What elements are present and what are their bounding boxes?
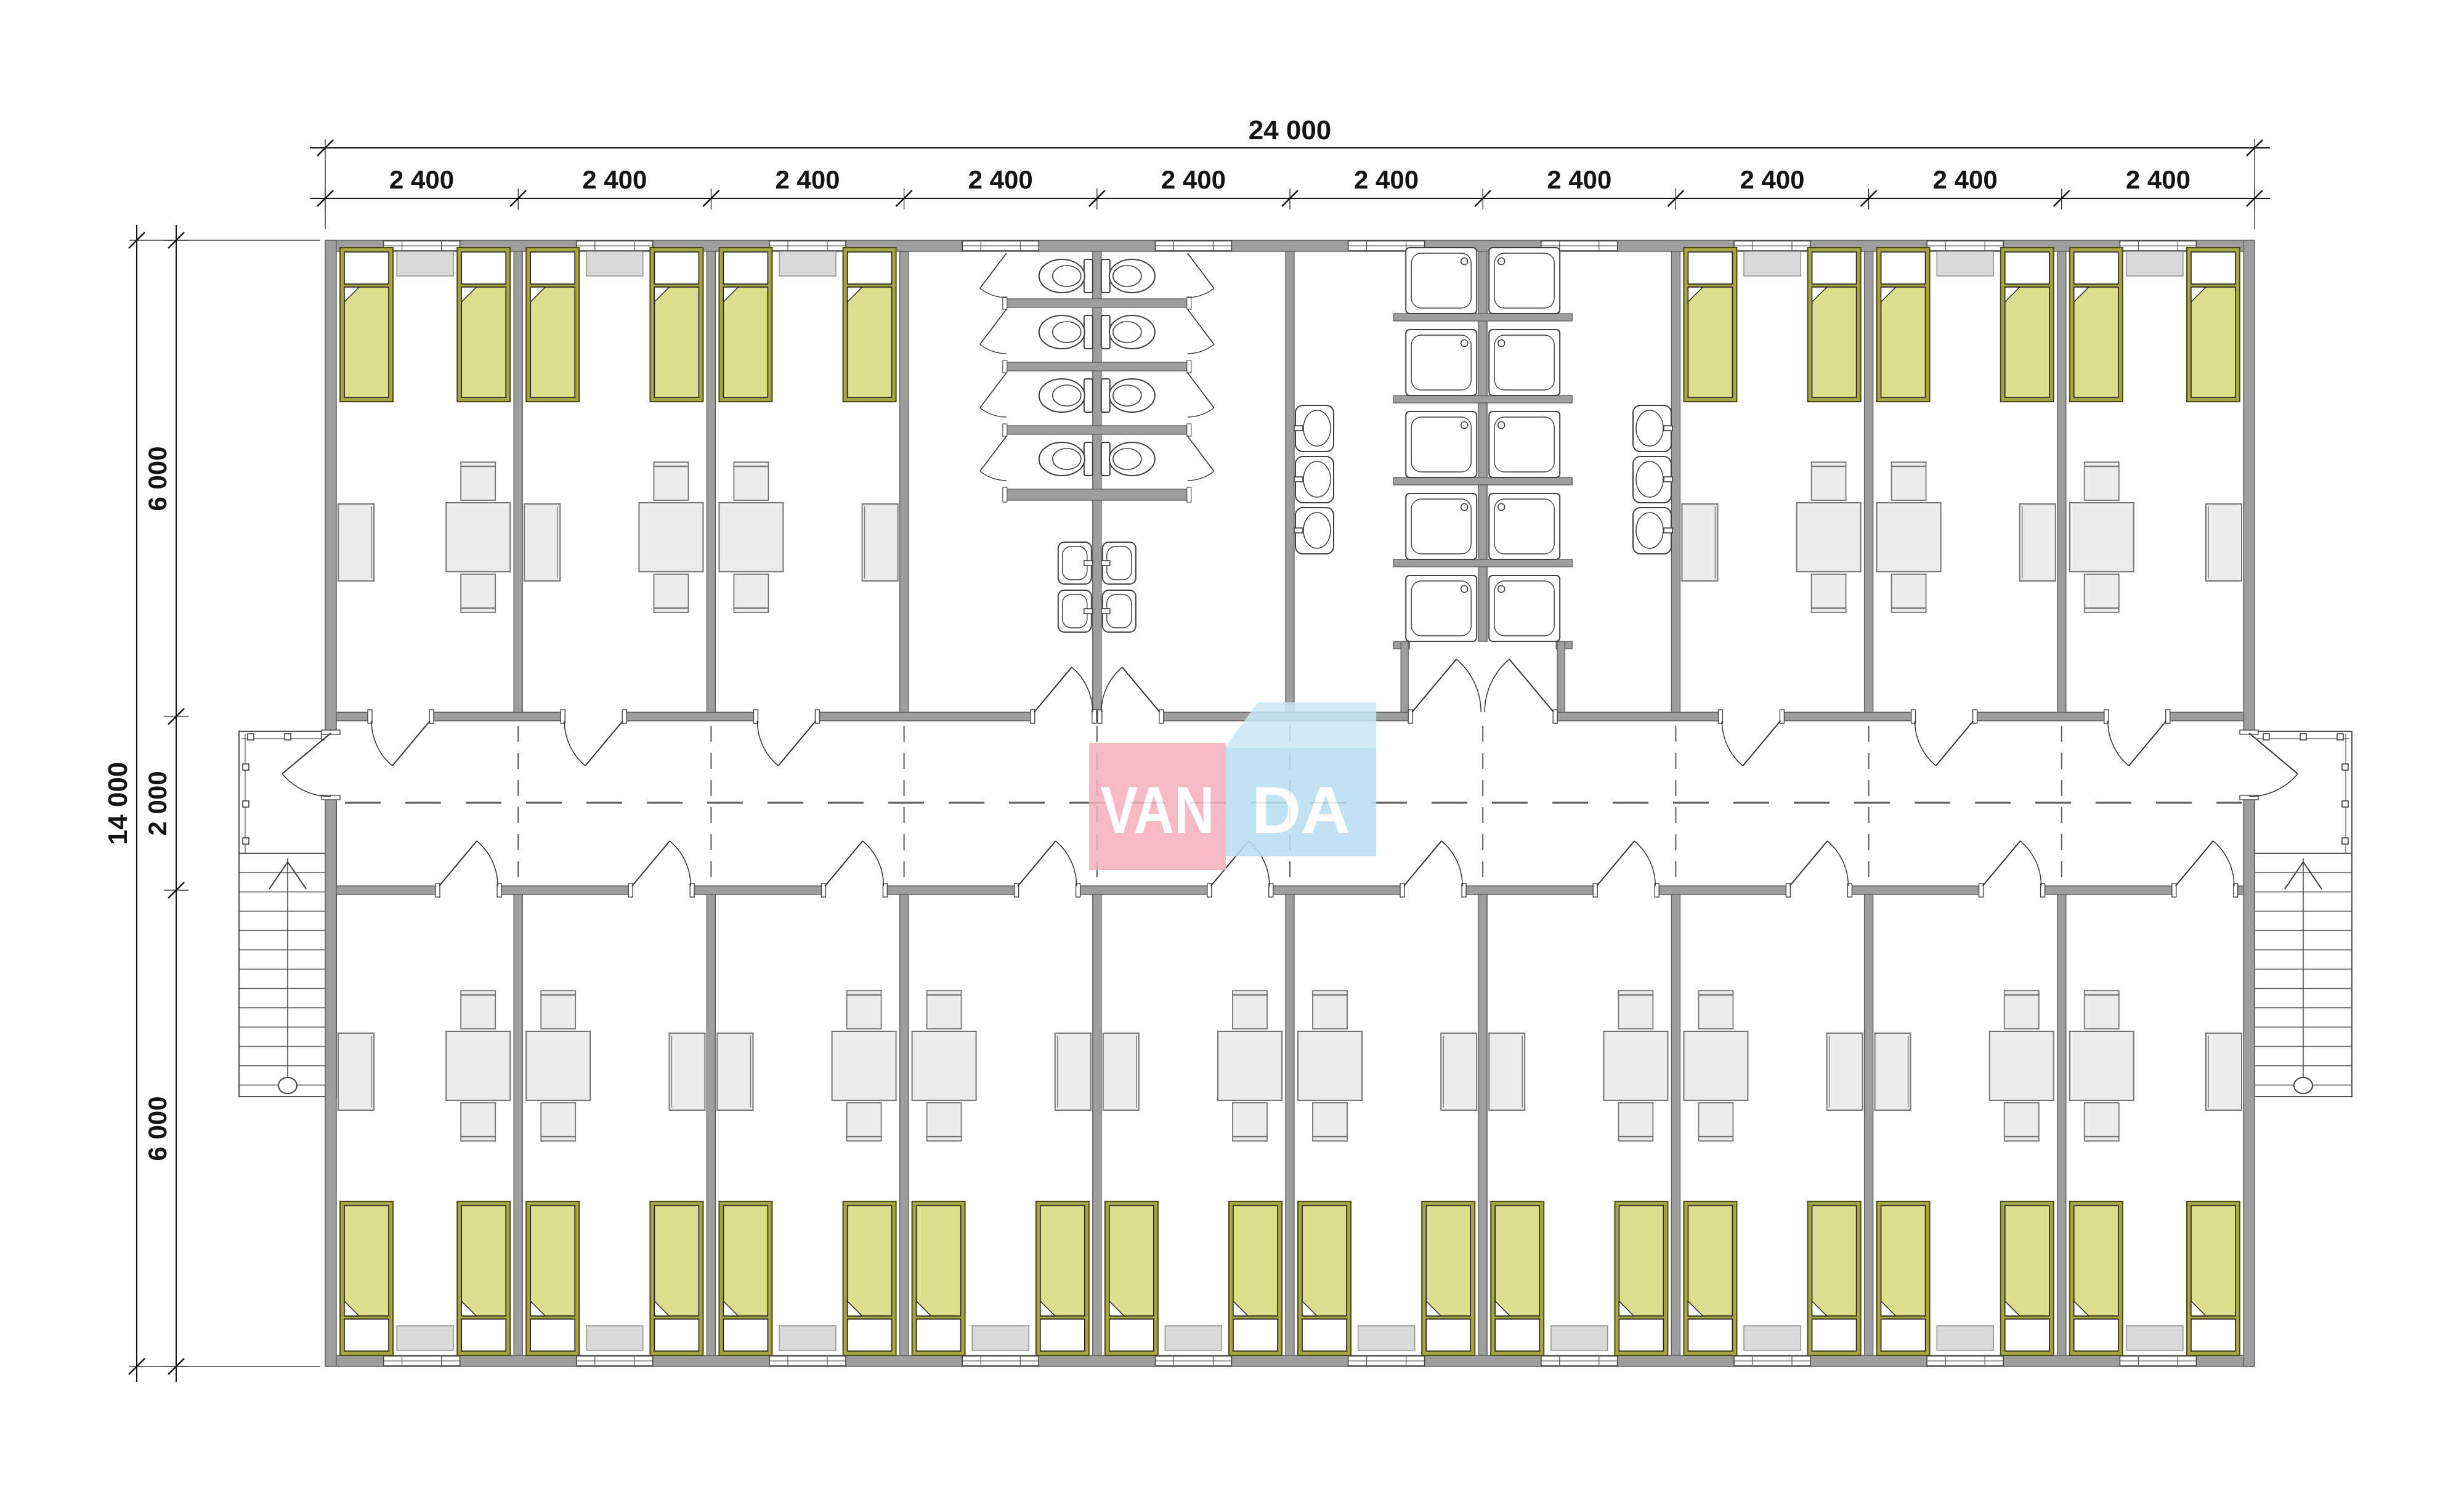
wardrobe-icon <box>2206 504 2242 581</box>
partition-wall-top-row <box>1865 251 1873 712</box>
chair-icon <box>2085 1103 2119 1141</box>
basin-tap <box>1664 426 1672 431</box>
window-sill <box>397 1326 453 1350</box>
bed-blanket <box>1495 1206 1539 1316</box>
door-arc <box>371 721 392 766</box>
bed-pillow <box>1109 1319 1154 1351</box>
shower-partition <box>1393 477 1572 485</box>
stall-jamb <box>1003 360 1007 373</box>
door-opening <box>757 712 816 721</box>
stall-door-arc <box>980 288 1007 298</box>
toilet-tank <box>1101 442 1110 476</box>
stall-door-arc <box>1188 471 1214 481</box>
bed-icon <box>719 248 772 402</box>
door-arc <box>757 721 778 766</box>
shower-partition <box>1393 314 1572 321</box>
window-icon <box>577 241 653 251</box>
sink-tap <box>1101 561 1110 566</box>
bed-pillow <box>1812 1319 1857 1351</box>
partition-wall-top-row <box>1093 251 1101 712</box>
partition-wall-bottom-row <box>1478 895 1487 1355</box>
railing-post-icon <box>2342 801 2348 807</box>
watermark-text-van: VAN <box>1101 773 1215 847</box>
bed-icon <box>1422 1201 1475 1355</box>
shower-tray-icon <box>1406 412 1477 477</box>
door-leaf <box>1404 841 1441 886</box>
window-icon <box>1541 1356 1618 1366</box>
bed-icon <box>1229 1201 1282 1355</box>
railing-post-icon <box>243 838 249 844</box>
door-arc <box>1634 841 1655 886</box>
door-leaf <box>1936 721 1974 766</box>
partition-wall-bottom-row <box>2057 895 2066 1355</box>
door-leaf <box>1122 667 1160 712</box>
partition-wall-bottom-row <box>707 895 715 1355</box>
tray-drain <box>1461 504 1468 511</box>
toilet-tank <box>1101 315 1110 349</box>
window-icon <box>1734 1356 1810 1366</box>
tray-drain <box>1461 586 1468 593</box>
stall-jamb <box>1187 297 1191 309</box>
bed-blanket <box>461 1206 506 1316</box>
bed-blanket <box>1233 1206 1278 1316</box>
bed-icon <box>1808 248 1861 402</box>
door-opening <box>1597 885 1655 895</box>
table-icon <box>1877 503 1941 572</box>
dim-left-total-label: 14 000 <box>103 762 133 845</box>
railing-post-icon <box>2337 734 2343 740</box>
wardrobe-icon <box>1055 1033 1091 1110</box>
wardrobe-icon <box>717 1033 753 1110</box>
window-icon <box>769 1356 846 1366</box>
bedroom-bottom-3 <box>717 991 896 1355</box>
sink-tap <box>1084 561 1093 566</box>
bed-blanket <box>2191 1206 2235 1316</box>
bed-pillow <box>1881 252 1926 284</box>
bed-icon <box>2001 248 2054 402</box>
table-icon <box>912 1031 976 1100</box>
bed-blanket <box>530 287 575 397</box>
door-leaf <box>439 841 477 886</box>
table-icon <box>2070 1031 2134 1100</box>
bed-pillow <box>461 252 506 284</box>
sink-icon <box>1101 590 1136 632</box>
door-opening <box>1018 885 1077 895</box>
stall-jamb <box>1003 297 1007 309</box>
bed-icon <box>340 248 393 402</box>
sink-tap <box>1101 609 1110 614</box>
window-icon <box>769 241 846 251</box>
door-arc <box>2020 841 2041 886</box>
door-leaf <box>585 721 623 766</box>
door-leaf <box>2176 841 2213 886</box>
window-sill <box>397 251 453 276</box>
bed-pillow <box>1233 1319 1278 1351</box>
door-leaf <box>392 721 430 766</box>
dim-module-label: 2 400 <box>968 165 1033 194</box>
bed-pillow <box>1040 1319 1085 1351</box>
stall-door-leaf <box>1188 309 1214 344</box>
bed-pillow <box>344 252 389 284</box>
sink-tap <box>1084 609 1093 614</box>
exterior-wall-right <box>2243 240 2255 1366</box>
door-opening <box>1034 712 1093 721</box>
chair-icon <box>734 462 768 500</box>
shower-tray-icon <box>1489 575 1560 641</box>
porch-platform <box>239 731 336 853</box>
bedroom-bottom-8 <box>1684 991 1862 1355</box>
table-icon <box>832 1031 896 1100</box>
door-opening <box>1101 712 1160 721</box>
door-arc <box>2108 721 2129 766</box>
window-sill <box>1358 1326 1415 1350</box>
dim-left-seg-label: 6 000 <box>143 446 172 511</box>
washbasin-icon <box>1294 405 1334 452</box>
exterior-wall-left <box>325 240 336 1366</box>
chair-icon <box>1892 574 1926 612</box>
bed-pillow <box>2191 1319 2235 1351</box>
railing-post-icon <box>285 734 291 740</box>
bed-blanket <box>2191 287 2235 397</box>
wardrobe-icon <box>669 1033 705 1110</box>
door-arc <box>1101 667 1122 712</box>
wardrobe-icon <box>524 504 560 581</box>
stall-partition <box>1007 489 1188 500</box>
entry-door-opening <box>2243 733 2255 797</box>
bed-icon <box>650 1201 703 1355</box>
table-icon <box>1218 1031 1282 1100</box>
railing-post-icon <box>243 801 249 807</box>
toilet-tank <box>1084 442 1093 476</box>
bed-icon <box>2001 1201 2054 1355</box>
window-sill <box>586 251 643 276</box>
wardrobe-icon <box>1875 1033 1911 1110</box>
bed-blanket <box>1619 1206 1663 1316</box>
bed-pillow <box>530 1319 575 1351</box>
dim-module-label: 2 400 <box>582 165 647 194</box>
chair-icon <box>1812 574 1846 612</box>
chair-icon <box>2085 574 2119 612</box>
bed-icon <box>2187 248 2240 402</box>
vestibule-wall <box>1401 641 1408 712</box>
shower-tray-icon <box>1406 248 1477 314</box>
railing-post-icon <box>2342 764 2348 770</box>
dim-module-label: 2 400 <box>1933 165 1998 194</box>
floor-plan-drawing: 24 0002 4002 4002 4002 4002 4002 4002 40… <box>0 0 2464 1502</box>
partition-wall-bottom-row <box>1865 895 1873 1355</box>
door-arc <box>1072 667 1093 712</box>
partition-wall-top-row <box>1478 251 1487 641</box>
chair-icon <box>461 991 495 1029</box>
bed-blanket <box>723 1206 768 1316</box>
toilet-icon <box>1039 379 1093 412</box>
window-icon <box>1348 1356 1425 1366</box>
door-arc <box>862 841 883 886</box>
chair-icon <box>927 1103 962 1141</box>
toilet-tank <box>1084 315 1093 349</box>
bed-pillow <box>1302 1319 1347 1351</box>
toilet-icon <box>1039 259 1093 293</box>
bed-pillow <box>2074 1319 2118 1351</box>
chair-icon <box>2085 462 2119 500</box>
bed-icon <box>1877 1201 1930 1355</box>
window-sill <box>779 251 836 276</box>
door-opening <box>1722 712 1780 721</box>
vestibule-wall <box>1557 641 1565 712</box>
bed-blanket <box>848 1206 892 1316</box>
door-opening <box>371 712 430 721</box>
bed-icon <box>1491 1201 1544 1355</box>
window-icon <box>1155 241 1231 251</box>
stall-jamb <box>1003 424 1007 436</box>
table-icon <box>1603 1031 1668 1100</box>
dim-module-label: 2 400 <box>389 165 454 194</box>
stall-jamb <box>1187 424 1191 436</box>
bed-icon <box>1877 248 1930 402</box>
bed-blanket <box>1109 1206 1154 1316</box>
bed-pillow <box>530 252 575 284</box>
shower-tray-icon <box>1489 248 1560 314</box>
stall-door-arc <box>1188 344 1214 354</box>
table-icon <box>1990 1031 2054 1100</box>
stall-door-leaf <box>1188 436 1214 471</box>
stall-door-leaf <box>1188 373 1214 408</box>
window-sill <box>1744 251 1801 276</box>
vanda-watermark: VANDA <box>1089 702 1376 870</box>
bed-icon <box>1808 1201 1861 1355</box>
toilet-tank <box>1084 379 1093 412</box>
washbasin-icon <box>1633 508 1672 554</box>
bed-pillow <box>1688 1319 1732 1351</box>
bedroom-top-2 <box>524 248 703 612</box>
door-arc <box>1456 659 1481 712</box>
dim-left-seg-label: 2 000 <box>143 771 172 835</box>
chair-icon <box>1233 1103 1267 1141</box>
bed-pillow <box>654 1319 699 1351</box>
bed-pillow <box>461 1319 506 1351</box>
dim-module-label: 2 400 <box>1740 165 1804 194</box>
toilet-tank <box>1101 379 1110 412</box>
bed-blanket <box>344 287 389 397</box>
dim-left-seg-label: 6 000 <box>143 1096 172 1161</box>
window-icon <box>2120 1356 2196 1366</box>
bed-blanket <box>1302 1206 1347 1316</box>
bed-pillow <box>1812 252 1857 284</box>
bedroom-top-3 <box>719 248 898 612</box>
partition-wall-top-row <box>2057 251 2066 712</box>
door-leaf <box>1789 841 1827 886</box>
stall-jamb <box>1003 487 1007 502</box>
tray-drain <box>1498 258 1505 265</box>
door-leaf <box>2129 721 2166 766</box>
door-leaf <box>1509 659 1554 712</box>
washbasin-icon <box>1633 405 1672 452</box>
stall-door-leaf <box>1188 253 1214 288</box>
toilet-icon <box>1039 315 1093 349</box>
shower-room <box>1294 248 1672 712</box>
bed-blanket <box>917 1206 961 1316</box>
stall-door-arc <box>980 471 1007 481</box>
bed-icon <box>719 1201 772 1355</box>
shower-tray-icon <box>1406 575 1477 641</box>
bed-icon <box>457 1201 510 1355</box>
basin-tap <box>1294 477 1303 482</box>
bedroom-top-8 <box>1682 248 1860 612</box>
table-icon <box>2070 503 2134 572</box>
washbasin-icon <box>1294 457 1334 503</box>
shower-partition <box>1393 559 1572 567</box>
basin-tap <box>1294 528 1303 533</box>
stall-jamb <box>1187 360 1191 373</box>
window-icon <box>962 1356 1039 1366</box>
partition-wall-top-row <box>1286 251 1294 712</box>
chair-icon <box>847 1103 881 1141</box>
door-opening <box>2108 712 2166 721</box>
wardrobe-icon <box>338 1033 374 1110</box>
wardrobe-icon <box>1489 1033 1525 1110</box>
table-icon <box>446 503 510 572</box>
bed-icon <box>1615 1201 1668 1355</box>
basin-tap <box>1294 426 1303 431</box>
bed-icon <box>1684 1201 1737 1355</box>
bed-blanket <box>723 287 768 397</box>
toilet-icon <box>1101 442 1155 476</box>
sink-icon <box>1058 590 1093 632</box>
tray-drain <box>1498 340 1505 347</box>
sink-icon <box>1058 542 1093 584</box>
stall-door-arc <box>1188 288 1214 298</box>
chair-icon <box>1892 462 1926 500</box>
door-opening <box>1915 712 1974 721</box>
door-leaf <box>1597 841 1634 886</box>
table-icon <box>1797 503 1861 572</box>
wardrobe-icon <box>862 504 898 581</box>
corridor-wall-bottom <box>336 886 2243 895</box>
chair-icon <box>1812 462 1846 500</box>
tray-drain <box>1498 504 1505 511</box>
stall-door-leaf <box>980 309 1007 344</box>
window-icon <box>1155 1356 1231 1366</box>
window-sill <box>1744 1326 1801 1350</box>
door-opening <box>825 885 883 895</box>
bed-icon <box>526 1201 579 1355</box>
bedroom-top-10 <box>2070 248 2242 612</box>
window-sill <box>586 1326 643 1350</box>
bed-pillow <box>2005 252 2049 284</box>
bed-icon <box>457 248 510 402</box>
stall-door-leaf <box>980 436 1007 471</box>
dim-left-segments: 6 0002 0006 000 <box>143 225 188 1382</box>
door-leaf <box>825 841 862 886</box>
bedroom-bottom-5 <box>1103 991 1282 1355</box>
table-icon <box>526 1031 590 1100</box>
wardrobe-icon <box>2206 1033 2242 1110</box>
stall-partition <box>1007 362 1188 371</box>
chair-icon <box>927 991 962 1029</box>
door-arc <box>1056 841 1077 886</box>
chair-icon <box>1233 991 1267 1029</box>
bed-pillow <box>917 1319 961 1351</box>
toilet-tank <box>1101 259 1110 293</box>
bed-icon <box>912 1201 965 1355</box>
wardrobe-icon <box>1682 504 1717 581</box>
partition-wall-bottom-row <box>514 895 522 1355</box>
wardrobe-icon <box>1103 1033 1139 1110</box>
chair-icon <box>461 1103 495 1141</box>
chair-icon <box>1618 1103 1653 1141</box>
door-opening <box>439 885 498 895</box>
partition-wall-bottom-row <box>900 895 909 1355</box>
door-arc <box>564 721 585 766</box>
door-opening <box>1412 712 1554 721</box>
door-leaf <box>1983 841 2020 886</box>
tray-drain <box>1461 258 1468 265</box>
chair-icon <box>734 574 768 612</box>
railing-post-icon <box>2342 838 2348 844</box>
bed-icon <box>2070 248 2123 402</box>
bed-pillow <box>654 252 699 284</box>
shower-partition <box>1393 396 1572 403</box>
chair-icon <box>2004 991 2039 1029</box>
toilet-icon <box>1101 379 1155 412</box>
toilet-icon <box>1039 442 1093 476</box>
window-sill <box>779 1326 836 1350</box>
bedroom-bottom-2 <box>526 991 705 1355</box>
bed-icon <box>526 248 579 402</box>
door-leaf <box>632 841 670 886</box>
chair-icon <box>541 1103 575 1141</box>
railing-post-icon <box>2300 734 2306 740</box>
dim-module-label: 2 400 <box>775 165 840 194</box>
window-sill <box>1937 1326 1993 1350</box>
bed-pillow <box>2074 252 2118 284</box>
shower-tray-icon <box>1489 412 1560 477</box>
door-opening <box>1211 885 1270 895</box>
bed-icon <box>1684 248 1737 402</box>
washbasin-icon <box>1633 457 1672 503</box>
bedroom-bottom-6 <box>1298 991 1477 1355</box>
bed-pillow <box>1426 1319 1470 1351</box>
bed-pillow <box>848 1319 892 1351</box>
chair-icon <box>1313 1103 1347 1141</box>
basin-tap <box>1664 477 1672 482</box>
window-sill <box>2126 1326 2183 1350</box>
table-icon <box>719 503 783 572</box>
wardrobe-icon <box>2020 504 2056 581</box>
dim-top-total-label: 24 000 <box>1249 115 1332 145</box>
door-arc <box>1827 841 1848 886</box>
bed-icon <box>2187 1201 2240 1355</box>
door-opening <box>1983 885 2041 895</box>
window-icon <box>577 1356 653 1366</box>
dim-top-modules: 2 4002 4002 4002 4002 4002 4002 4002 400… <box>310 165 2270 209</box>
bed-pillow <box>1881 1319 1926 1351</box>
bed-icon <box>1105 1201 1158 1355</box>
bed-pillow <box>723 1319 768 1351</box>
bed-icon <box>650 248 703 402</box>
washbasin-icon <box>1294 508 1334 554</box>
shower-tray-icon <box>1489 493 1560 559</box>
window-icon <box>384 241 460 251</box>
door-arc <box>477 841 498 886</box>
wardrobe-icon <box>1827 1033 1863 1110</box>
bed-blanket <box>654 1206 699 1316</box>
bed-icon <box>2070 1201 2123 1355</box>
door-arc <box>1915 721 1936 766</box>
chair-icon <box>847 991 881 1029</box>
window-sill <box>1937 251 1993 276</box>
bed-blanket <box>2074 1206 2118 1316</box>
